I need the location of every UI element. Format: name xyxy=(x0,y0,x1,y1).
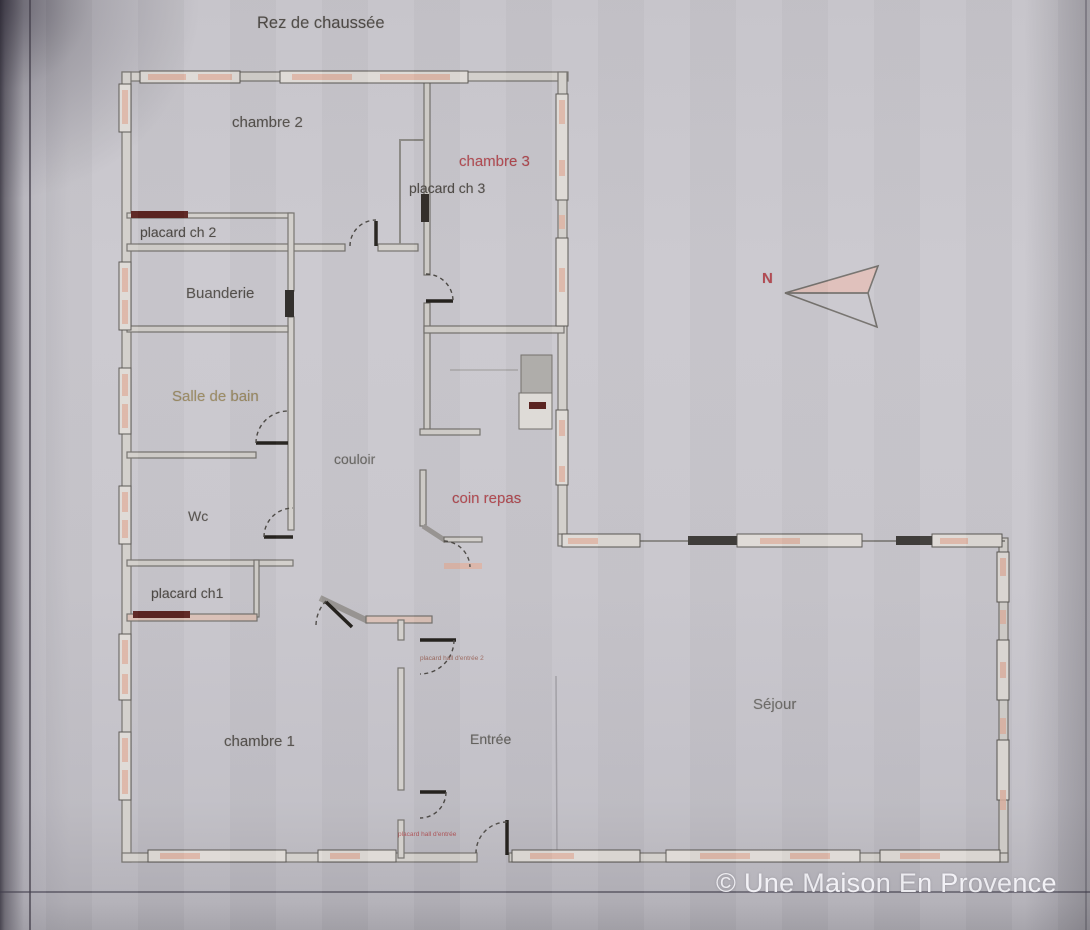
divider-entree-sejour xyxy=(556,676,557,856)
room-label-placard-ch2: placard ch 2 xyxy=(140,225,216,239)
room-label-coin-repas: coin repas xyxy=(452,491,521,506)
room-label-chambre1: chambre 1 xyxy=(224,734,295,749)
room-label-wc: Wc xyxy=(188,509,208,523)
appliance-block xyxy=(521,355,552,393)
wall-coin-repas-stub xyxy=(420,429,480,435)
wall-chambre3-bottom xyxy=(424,326,564,333)
wall-couloir-left-b xyxy=(288,317,294,530)
small-label-hall-closet-1: placard hall d'entrée xyxy=(398,832,456,839)
room-label-placard-ch3: placard ch 3 xyxy=(409,181,485,195)
page-title: Rez de chaussée xyxy=(257,15,385,32)
watermark: © Une Maison En Provence xyxy=(716,870,1057,897)
door-chambre3-swing xyxy=(426,274,453,301)
halfwall-coin-repas-v xyxy=(420,470,426,526)
room-label-salle-de-bain: Salle de bain xyxy=(172,389,259,404)
wall-entree-left-a xyxy=(398,620,404,640)
wall-chambre3-left-a xyxy=(424,76,430,275)
north-arrow xyxy=(785,266,878,327)
room-label-buanderie: Buanderie xyxy=(186,286,254,301)
closet-bars xyxy=(131,194,429,618)
door-sdb-swing xyxy=(256,411,288,443)
door-chambre2-swing xyxy=(350,220,376,246)
placard-ch2-bar xyxy=(131,211,188,218)
wall-entree-left-c xyxy=(398,820,404,858)
buanderie-door-bar xyxy=(285,290,294,317)
sejour-top-dark-bar-2 xyxy=(896,536,932,545)
floor-plan-drawing xyxy=(0,0,1090,930)
north-letter: N xyxy=(762,271,773,286)
wall-buanderie-bottom xyxy=(127,326,288,332)
placard-ch1-bar xyxy=(133,611,190,618)
wall-entree-left-b xyxy=(398,668,404,790)
wall-chambre2-bottom-a xyxy=(127,244,345,251)
north-arrow-lower xyxy=(785,293,877,327)
north-arrow-upper xyxy=(785,266,878,293)
wall-chambre3-left-b xyxy=(424,303,430,433)
front-door-swing xyxy=(476,822,507,853)
placard-ch3-bar xyxy=(421,194,429,222)
wall-chambre2-bottom-b xyxy=(378,244,418,251)
room-label-entree: Entrée xyxy=(470,732,511,746)
wall-couloir-left-a xyxy=(288,213,294,291)
photographed-floor-plan-page: Rez de chaussée chambre 2 chambre 3 plac… xyxy=(0,0,1090,930)
kitchen-fixtures xyxy=(450,355,552,429)
counter-handle-bar xyxy=(529,402,546,409)
room-label-sejour: Séjour xyxy=(753,697,796,712)
wall-wc-bottom xyxy=(127,560,293,566)
room-label-couloir: couloir xyxy=(334,452,375,466)
wall-placard-ch1-right xyxy=(254,560,259,617)
room-label-chambre2: chambre 2 xyxy=(232,115,303,130)
counter-block xyxy=(519,393,552,429)
small-label-hall-closet-2: placard hall d'entrée 2 xyxy=(420,656,484,663)
door-hall-closet1-swing xyxy=(420,792,446,818)
wall-sdb-bottom xyxy=(127,452,256,458)
door-chambre1-swing xyxy=(316,601,326,627)
room-label-placard-ch1: placard ch1 xyxy=(151,586,223,600)
halfwall-coin-repas-h xyxy=(444,537,482,542)
sejour-top-dark-bar-1 xyxy=(688,536,737,545)
halfwall-coin-repas-diag xyxy=(423,526,446,541)
room-label-chambre3: chambre 3 xyxy=(459,154,530,169)
